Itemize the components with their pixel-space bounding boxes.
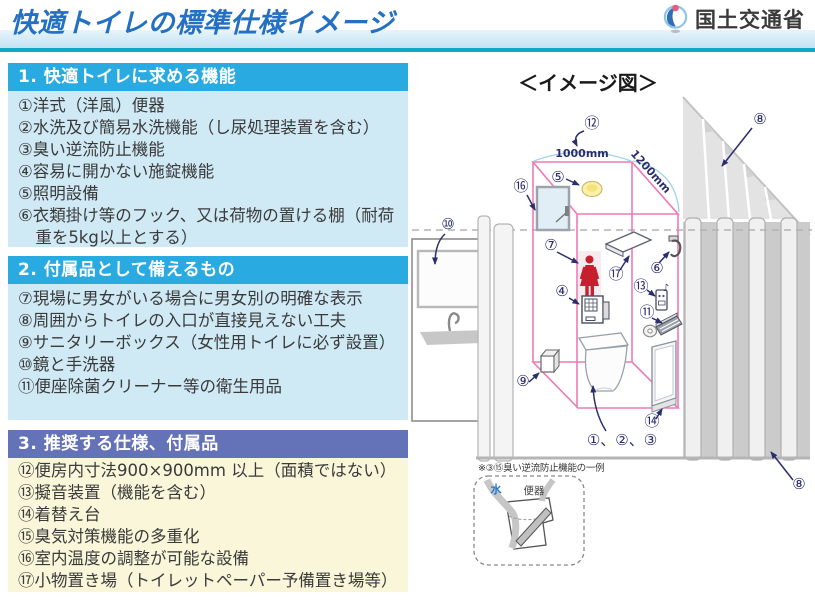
- music-note-icon: ♪: [663, 283, 669, 294]
- callout-13: ⑬: [633, 277, 648, 295]
- list-item: ⑪便座除菌クリーナー等の衛生用品: [18, 376, 404, 398]
- dimension-width-label: 1000mm: [555, 147, 609, 160]
- list-item: ⑤照明設備: [18, 183, 404, 205]
- list-item: ⑨サニタリーボックス（女性用トイレに必ず設置）: [18, 332, 404, 354]
- list-item: ⑥衣類掛け等のフック、又は荷物の置ける棚（耐荷重を5kg以上とする）: [18, 205, 404, 247]
- mirror-icon: [418, 251, 482, 307]
- ministry-logo: 国土交通省: [662, 3, 805, 34]
- header-teal-rule: [0, 48, 815, 52]
- sanitary-box-icon: [541, 350, 559, 372]
- section-3-body: ⑫便房内寸法900×900mm 以上（面積ではない） ⑬擬音装置（機能を含む） …: [8, 458, 408, 592]
- inset-note: ※③⑮臭い逆流防止機能の一例: [478, 462, 604, 474]
- section-accessories: 2. 付属品として備えるもの ⑦現場に男女がいる場合に男女別の明確な表示 ⑧周囲…: [8, 256, 408, 420]
- list-item: ⑫便房内寸法900×900mm 以上（面積ではない）: [18, 460, 404, 482]
- toilet-bowl-icon: [579, 333, 628, 391]
- door-lock-icon: [582, 296, 609, 323]
- callout-4: ④: [555, 282, 568, 300]
- callout-6: ⑥: [650, 259, 663, 277]
- changing-board-icon: [652, 341, 676, 412]
- mirror-washstand-drawing: [412, 239, 487, 421]
- callout-17: ⑰: [608, 265, 623, 283]
- list-item: ④容易に開かない施錠機能: [18, 161, 404, 183]
- callout-5: ⑤: [551, 168, 564, 186]
- dimension-depth-label: 1200mm: [628, 147, 673, 195]
- toilet-diagram: ＜イメージ図＞: [405, 55, 815, 602]
- spec-panel: 1. 快適トイレに求める機能 ①洋式（洋風）便器 ②水洗及び簡易水洗機能（し尿処…: [8, 63, 408, 592]
- callout-8-top: ⑧: [753, 110, 766, 128]
- section-2-body: ⑦現場に男女がいる場合に男女別の明確な表示 ⑧周囲からトイレの入口が直接見えない…: [8, 284, 408, 420]
- odor-prevention-inset: ※③⑮臭い逆流防止機能の一例 水 便器: [474, 462, 604, 565]
- mlit-logo-icon: [662, 3, 689, 34]
- entrance-pillars: [478, 216, 513, 461]
- diagram-title: ＜イメージ図＞: [518, 71, 658, 95]
- list-item: ⑯室内温度の調整が可能な設備: [18, 548, 404, 570]
- list-item: ⑰小物置き場（トイレットペーパー予備置き場等）: [18, 570, 404, 592]
- ministry-name: 国土交通省: [695, 4, 805, 34]
- section-1-body: ①洋式（洋風）便器 ②水洗及び簡易水洗機能（し尿処理装置を含む） ③臭い逆流防止…: [8, 91, 408, 247]
- list-item: ②水洗及び簡易水洗機能（し尿処理装置を含む）: [18, 117, 404, 139]
- sink-icon: [420, 330, 487, 345]
- inset-water-label: 水: [491, 482, 503, 496]
- list-item: ③臭い逆流防止機能: [18, 139, 404, 161]
- section-1-header: 1. 快適トイレに求める機能: [8, 63, 408, 91]
- list-item: ⑩鏡と手洗器: [18, 354, 404, 376]
- callout-12: ⑫: [584, 114, 599, 132]
- page-title: 快適トイレの標準仕様イメージ: [10, 1, 394, 40]
- shelf-icon: [606, 232, 651, 257]
- callout-16: ⑯: [513, 177, 528, 195]
- callout-9: ⑨: [516, 372, 529, 390]
- section-recommended: 3. 推奨する仕様、付属品 ⑫便房内寸法900×900mm 以上（面積ではない）…: [8, 430, 408, 592]
- callout-10: ⑩: [441, 215, 454, 233]
- list-item: ⑧周囲からトイレの入口が直接見えない工夫: [18, 310, 404, 332]
- section-3-header: 3. 推奨する仕様、付属品: [8, 430, 408, 458]
- female-sign-icon: [578, 251, 601, 298]
- list-item: ⑭着替え台: [18, 504, 404, 526]
- list-item: ①洋式（洋風）便器: [18, 95, 404, 117]
- section-2-header: 2. 付属品として備えるもの: [8, 256, 408, 284]
- list-item: ⑮臭気対策機能の多重化: [18, 526, 404, 548]
- inset-toilet-label: 便器: [524, 484, 545, 497]
- list-item: ⑦現場に男女がいる場合に男女別の明確な表示: [18, 288, 404, 310]
- callout-7: ⑦: [544, 236, 557, 254]
- sound-device-icon: ♪: [656, 283, 669, 310]
- list-item: ⑬擬音装置（機能を含む）: [18, 482, 404, 504]
- callout-1-2-3: ①、②、③: [587, 431, 657, 449]
- window-icon: [537, 187, 569, 230]
- privacy-fence-drawing: [683, 97, 810, 460]
- section-functions: 1. 快適トイレに求める機能 ①洋式（洋風）便器 ②水洗及び簡易水洗機能（し尿処…: [8, 63, 408, 247]
- callout-8-bottom: ⑧: [792, 475, 805, 493]
- ceiling-light-icon: [582, 182, 602, 197]
- callout-11: ⑪: [639, 303, 654, 321]
- callout-14: ⑭: [644, 412, 659, 430]
